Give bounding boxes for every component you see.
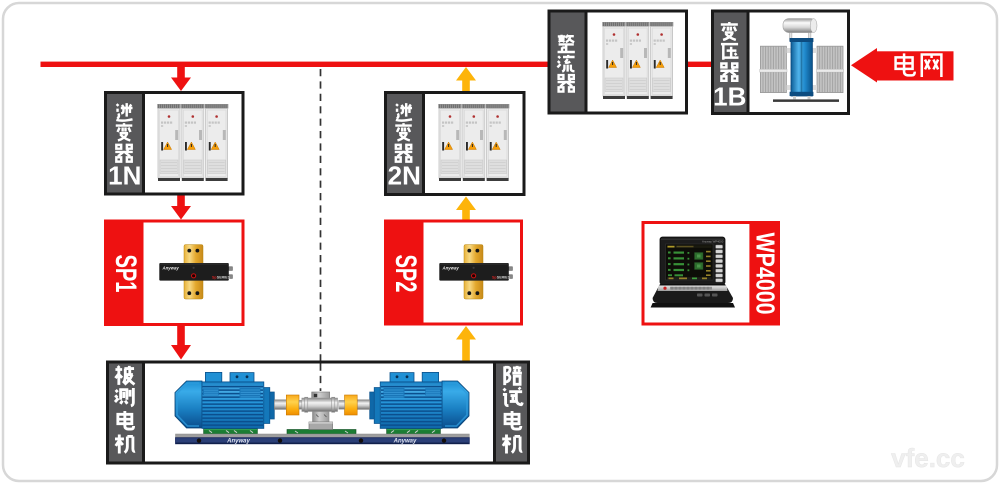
svg-text:2N: 2N	[388, 161, 421, 191]
svg-text:1B: 1B	[713, 82, 746, 112]
svg-text:SP2: SP2	[389, 255, 422, 293]
svg-text:WP4000: WP4000	[751, 233, 781, 315]
svg-text:SP1: SP1	[109, 255, 142, 293]
svg-text:Anyway: Anyway	[162, 266, 180, 271]
svg-text:Anyway: Anyway	[393, 439, 417, 445]
svg-text:SERIES: SERIES	[217, 276, 231, 280]
svg-text:Anyway: Anyway	[226, 439, 250, 445]
svg-text:vfe.cc: vfe.cc	[891, 443, 965, 473]
svg-text:Anyway WP4000: Anyway WP4000	[702, 240, 724, 244]
svg-text:1N: 1N	[108, 161, 141, 191]
